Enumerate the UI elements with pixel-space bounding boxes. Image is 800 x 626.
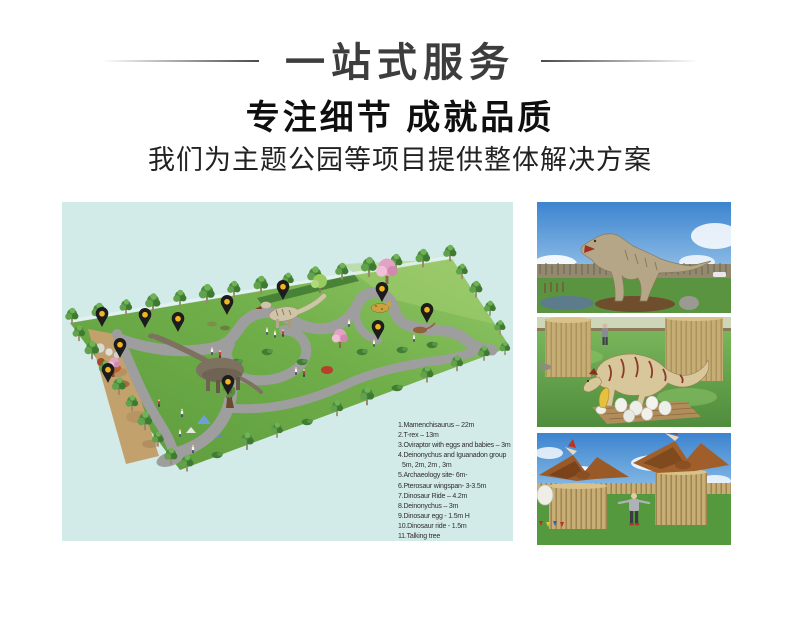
legend-item: 8.Deinonychus – 3m — [398, 502, 510, 512]
subheadline: 我们为主题公园等项目提供整体解决方案 — [0, 138, 800, 177]
legend-item: 11.Talking tree — [398, 532, 510, 541]
promo-page: 一站式服务 专注细节 成就品质 我们为主题公园等项目提供整体解决方案 — [0, 0, 800, 626]
mulch-mound — [595, 296, 675, 312]
trex-photo — [537, 202, 731, 313]
banner-title-row: 一站式服务 — [0, 36, 800, 82]
oviraptor-photo — [537, 317, 731, 427]
legend-item: 3.Oviraptor with eggs and babies – 3m — [398, 441, 510, 451]
title-decor-line-left — [101, 60, 259, 62]
legend-item: 1.Mamenchisaurus – 22m — [398, 421, 510, 431]
legend-item: 7.Dinosaur Ride – 4.2m — [398, 492, 510, 502]
parked-car — [713, 272, 726, 277]
legend-item: 4.Deinonychus and Iguanadon group — [398, 451, 510, 461]
wood-pole-tower — [655, 471, 707, 525]
legend-item: 5m, 2m, 2m , 3m — [398, 461, 510, 471]
wood-pole-tower — [665, 317, 723, 381]
attraction-legend: 1.Mamenchisaurus – 22m 2.T-rex – 13m 3.O… — [398, 421, 510, 541]
wood-pole-tower — [549, 485, 607, 529]
legend-item: 5.Archaeology site- 6m- — [398, 471, 510, 481]
park-map-image: 1.Mamenchisaurus – 22m 2.T-rex – 13m 3.O… — [62, 202, 513, 541]
legend-item: 9.Dinosaur egg - 1.5m H — [398, 512, 510, 522]
legend-item: 2.T-rex – 13m — [398, 431, 510, 441]
headline: 专注细节 成就品质 — [0, 90, 800, 139]
banner-title: 一站式服务 — [285, 30, 515, 88]
wood-pole-tower — [545, 319, 591, 377]
pond — [540, 296, 594, 310]
red-bush — [321, 366, 333, 374]
rock — [679, 296, 699, 310]
legend-item: 6.Pterosaur wingspan- 3-3.5m — [398, 482, 510, 492]
pterosaur-photo — [537, 433, 731, 545]
small-gray-dino — [539, 364, 551, 370]
title-decor-line-right — [541, 60, 699, 62]
egg-decoration — [537, 485, 553, 505]
legend-item: 10.Dinosaur ride - 1.5m — [398, 522, 510, 532]
